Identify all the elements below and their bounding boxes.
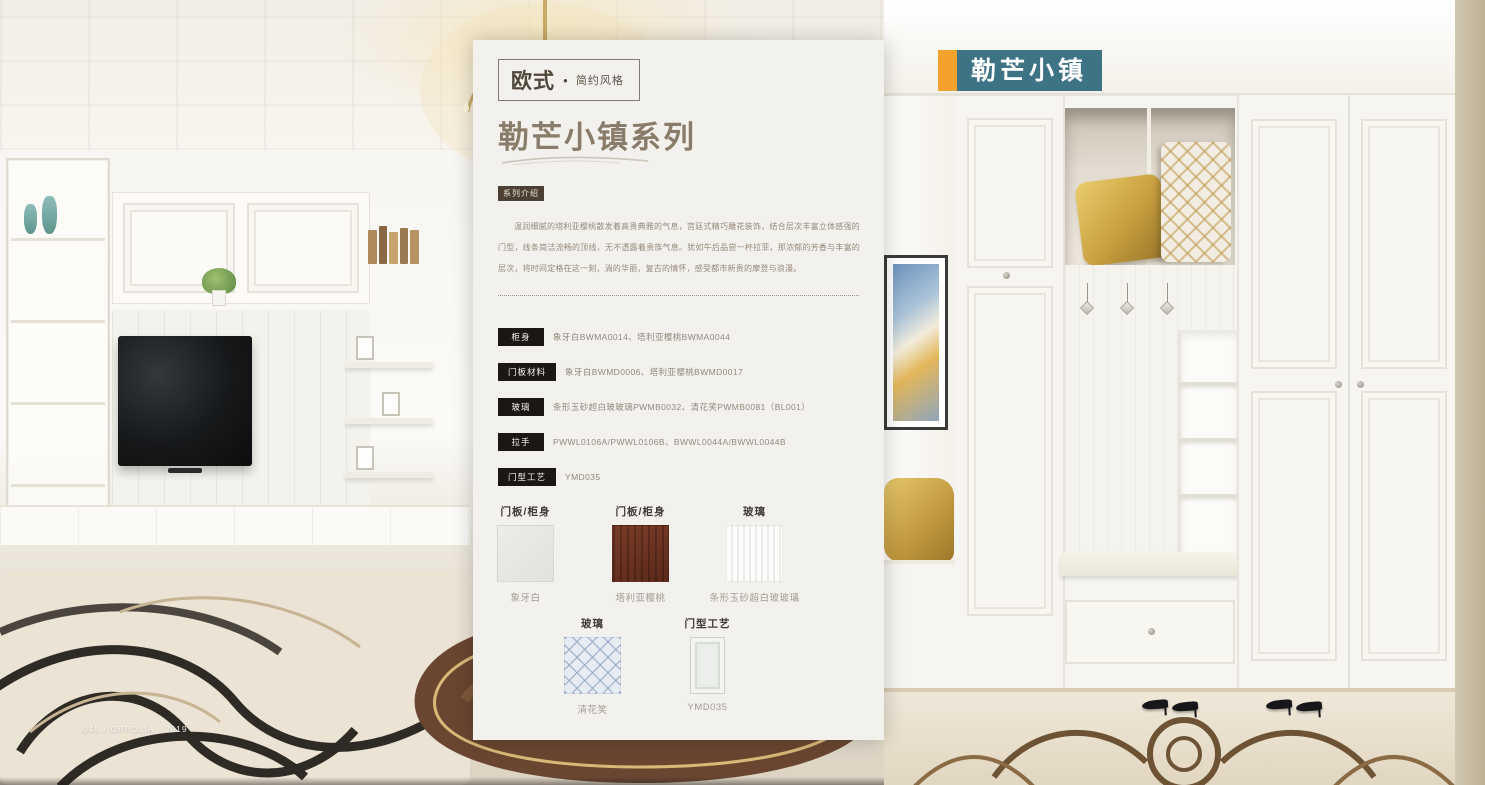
glass-display-cabinet	[6, 158, 110, 558]
wardrobe-left-column	[955, 96, 1065, 690]
photo-frame	[382, 392, 400, 416]
photo-frame	[356, 336, 374, 360]
spec-value: YMD035	[565, 472, 600, 482]
patterned-pillow	[1161, 142, 1231, 262]
plant-pot	[212, 290, 226, 306]
style-sub-label: 简约风格	[576, 72, 624, 88]
series-info-panel: 欧式 ● 简约风格 勒芒小镇系列 系列介绍 温润细腻的塔利亚樱桃散发着高贵典雅的…	[473, 40, 884, 740]
swatch-sample	[612, 525, 669, 582]
cabinet-door	[247, 203, 359, 293]
swatch-caption: YMD035	[688, 702, 728, 713]
spec-label: 柜身	[498, 328, 544, 346]
page-number: 045 / OPPOLIA · 2019	[83, 724, 188, 734]
book-row	[368, 224, 434, 264]
wardrobe-photo	[884, 0, 1485, 785]
badge-title: 勒芒小镇	[957, 50, 1102, 91]
bench-drawer	[1065, 600, 1235, 664]
spec-label: 拉手	[498, 433, 544, 451]
coat-hook	[1167, 283, 1168, 313]
door-knob	[1335, 381, 1342, 388]
book	[400, 228, 408, 264]
catalog-page: 勒芒小镇 欧式 ● 简约风格 勒芒小镇系列 系列介绍 温润细腻的塔利亚樱桃散发着…	[0, 0, 1485, 785]
spec-row: 柜身 象牙白BWMA0014、塔利亚樱桃BWMA0044	[498, 328, 864, 346]
spec-label: 门板材料	[498, 363, 556, 381]
crystal-knob	[1080, 301, 1094, 315]
upper-cabinet	[112, 192, 370, 304]
hook-stem	[1167, 283, 1168, 303]
swatch-sample	[690, 637, 725, 694]
book	[379, 226, 387, 264]
swatch-cherry: 门板/柜身 塔利亚樱桃	[612, 504, 669, 604]
abstract-artwork	[884, 255, 948, 430]
crystal-knob	[1120, 301, 1134, 315]
spec-row: 门板材料 象牙白BWMD0006、塔利亚樱桃BWMD0017	[498, 363, 864, 381]
sofa-edge	[884, 560, 956, 690]
shelf	[1181, 494, 1237, 498]
door-knob	[1003, 272, 1010, 279]
swatch-caption: 象牙白	[510, 590, 540, 604]
coat-hook	[1127, 283, 1128, 313]
teal-vase	[42, 196, 57, 234]
title-swoosh	[500, 153, 650, 171]
badge-accent-block	[938, 50, 957, 91]
spec-value: 象牙白BWMA0014、塔利亚樱桃BWMA0044	[553, 331, 730, 343]
book	[410, 230, 419, 264]
gold-pillow	[1074, 173, 1170, 267]
wardrobe-door	[1361, 119, 1447, 369]
door-split	[1348, 95, 1350, 690]
shelf	[1181, 438, 1237, 442]
bench-cushion	[1060, 552, 1240, 576]
swatch-header: 玻璃	[743, 504, 766, 519]
spec-row: 玻璃 条形玉砂超白玻玻璃PWMB0032、清花笑PWMB0081（BL001）	[498, 398, 864, 416]
wall-shelf	[345, 418, 433, 424]
photo-frame	[356, 446, 374, 470]
dot-icon: ●	[563, 76, 568, 85]
swatch-lattice-glass: 玻璃 清花笑	[564, 616, 621, 716]
crystal-knob	[1160, 301, 1174, 315]
wardrobe-door	[1251, 119, 1337, 369]
door-knob	[1357, 381, 1364, 388]
book	[389, 232, 398, 264]
drawer-knob	[1148, 628, 1155, 635]
swatch-caption: 清花笑	[577, 702, 607, 716]
swatch-header: 门板/柜身	[616, 504, 666, 519]
spec-value: 象牙白BWMD0006、塔利亚樱桃BWMD0017	[565, 366, 743, 378]
series-title: 勒芒小镇系列	[498, 112, 696, 157]
spec-label: 玻璃	[498, 398, 544, 416]
cabinet-shelf	[11, 320, 105, 323]
cabinet-shelf	[11, 402, 105, 405]
wardrobe-door	[1251, 391, 1337, 661]
swatch-sample	[726, 525, 783, 582]
hook-stem	[1127, 283, 1128, 303]
open-shelf-column	[1178, 330, 1237, 555]
wall-shelf	[345, 362, 433, 368]
swatch-caption: 条形玉砂超白玻玻璃	[709, 590, 799, 604]
patterned-rug	[0, 572, 470, 785]
dotted-divider	[498, 295, 859, 296]
wardrobe-right-column	[1237, 95, 1457, 690]
tv-stand	[168, 468, 202, 473]
swatch-caption: 塔利亚樱桃	[615, 590, 665, 604]
swatch-door-style: 门型工艺 YMD035	[690, 616, 725, 713]
wardrobe-door	[967, 118, 1053, 268]
wardrobe-door	[1361, 391, 1447, 661]
spec-value: PWWL0106A/PWWL0106B、BWWL0044A/BWWL0044B	[553, 436, 786, 448]
hook-stem	[1087, 283, 1088, 303]
cabinet-shelf	[11, 484, 105, 487]
spec-label: 门型工艺	[498, 468, 556, 486]
intro-paragraph: 温润细腻的塔利亚樱桃散发着高贵典雅的气息，宫廷式精巧雕花装饰，结合层次丰富立体感…	[498, 216, 860, 279]
shelf	[1181, 382, 1237, 386]
shadow	[0, 777, 884, 785]
swatch-sample	[564, 637, 621, 694]
swatch-header: 门型工艺	[685, 616, 731, 631]
wall-edge	[1455, 0, 1485, 785]
spec-list: 柜身 象牙白BWMA0014、塔利亚樱桃BWMA0044 门板材料 象牙白BWM…	[498, 328, 864, 503]
swatch-header: 门板/柜身	[501, 504, 551, 519]
style-category-label: 欧式	[511, 65, 555, 95]
swatch-ivory: 门板/柜身 象牙白	[497, 504, 554, 604]
series-corner-badge: 勒芒小镇	[938, 50, 1102, 91]
wardrobe-door	[967, 286, 1053, 616]
spec-row: 拉手 PWWL0106A/PWWL0106B、BWWL0044A/BWWL004…	[498, 433, 864, 451]
coat-hook	[1087, 283, 1088, 313]
artwork-canvas	[893, 264, 939, 421]
gold-pillow	[884, 478, 954, 562]
intro-tag: 系列介绍	[498, 186, 544, 201]
swatch-header: 玻璃	[581, 616, 604, 631]
swatch-sample	[497, 525, 554, 582]
swatch-striped-glass: 玻璃 条形玉砂超白玻玻璃	[726, 504, 783, 604]
book	[368, 230, 377, 264]
spec-row: 门型工艺 YMD035	[498, 468, 864, 486]
spec-value: 条形玉砂超白玻玻璃PWMB0032、清花笑PWMB0081（BL001）	[553, 401, 810, 413]
teal-vase	[24, 204, 37, 234]
wall-shelf	[345, 472, 433, 478]
tv-screen	[118, 336, 252, 466]
cabinet-shelf	[11, 238, 105, 241]
style-tag-box: 欧式 ● 简约风格	[498, 59, 640, 101]
